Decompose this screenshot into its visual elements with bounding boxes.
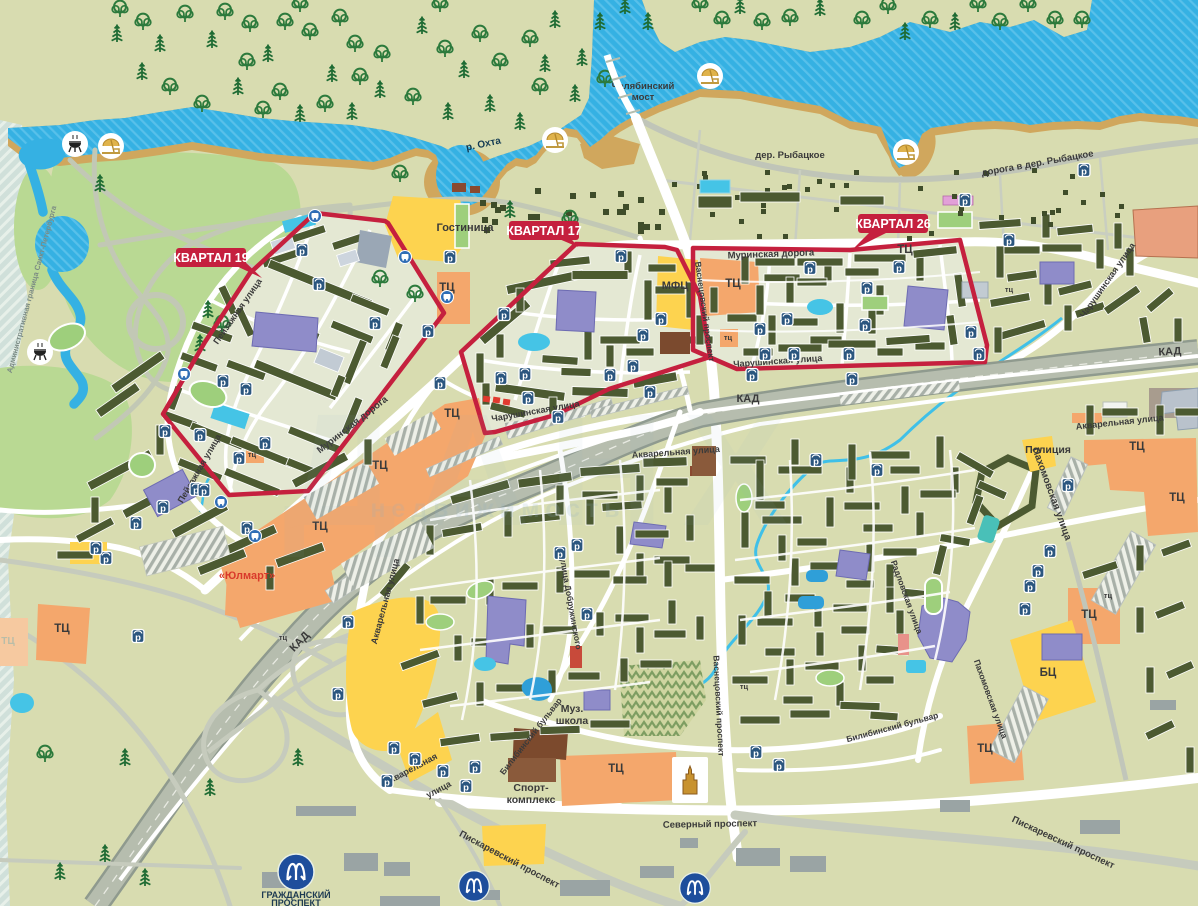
- svg-text:ТЦ: ТЦ: [54, 623, 70, 635]
- svg-text:КАД: КАД: [1158, 345, 1182, 358]
- svg-text:Муз.: Муз.: [561, 703, 584, 715]
- svg-text:тц: тц: [279, 633, 288, 642]
- svg-text:тц: тц: [724, 333, 733, 342]
- svg-text:ТЦ: ТЦ: [897, 244, 913, 256]
- svg-text:ТЦ: ТЦ: [1129, 441, 1145, 453]
- svg-text:«Юлмарт»: «Юлмарт»: [219, 570, 275, 582]
- svg-text:ТЦ: ТЦ: [977, 743, 993, 755]
- svg-text:дер. Рыбацкое: дер. Рыбацкое: [755, 150, 825, 161]
- svg-text:мост: мост: [632, 92, 655, 103]
- svg-text:ТЦ: ТЦ: [1169, 492, 1185, 504]
- svg-text:тц: тц: [248, 450, 257, 459]
- svg-text:МФЦ: МФЦ: [662, 280, 689, 292]
- svg-text:ТЦ: ТЦ: [1, 636, 15, 647]
- svg-text:ПРОСПЕКТ: ПРОСПЕКТ: [271, 898, 321, 906]
- svg-text:тц: тц: [1104, 591, 1113, 600]
- svg-text:Гостиница: Гостиница: [437, 222, 495, 234]
- svg-text:КВАРТАЛ 26: КВАРТАЛ 26: [855, 217, 930, 231]
- svg-text:тц: тц: [1005, 285, 1014, 294]
- svg-text:Северный проспект: Северный проспект: [663, 818, 758, 831]
- svg-text:КВАРТАЛ 17: КВАРТАЛ 17: [506, 224, 581, 238]
- svg-text:недвижимость: недвижимость: [370, 495, 625, 523]
- svg-text:КВАРТАЛ 19: КВАРТАЛ 19: [173, 251, 248, 265]
- svg-text:Полиция: Полиция: [1025, 444, 1071, 456]
- svg-text:ДАНХ: ДАНХ: [283, 380, 807, 559]
- svg-text:ТЦ: ТЦ: [725, 278, 741, 290]
- svg-text:Спорт-: Спорт-: [513, 782, 549, 794]
- svg-text:ТЦ: ТЦ: [608, 763, 624, 775]
- svg-text:БЦ: БЦ: [1040, 667, 1057, 679]
- svg-text:ТЦ: ТЦ: [1081, 609, 1097, 621]
- svg-text:комплекс: комплекс: [507, 794, 556, 806]
- svg-text:школа: школа: [556, 715, 589, 727]
- svg-text:тц: тц: [740, 682, 749, 691]
